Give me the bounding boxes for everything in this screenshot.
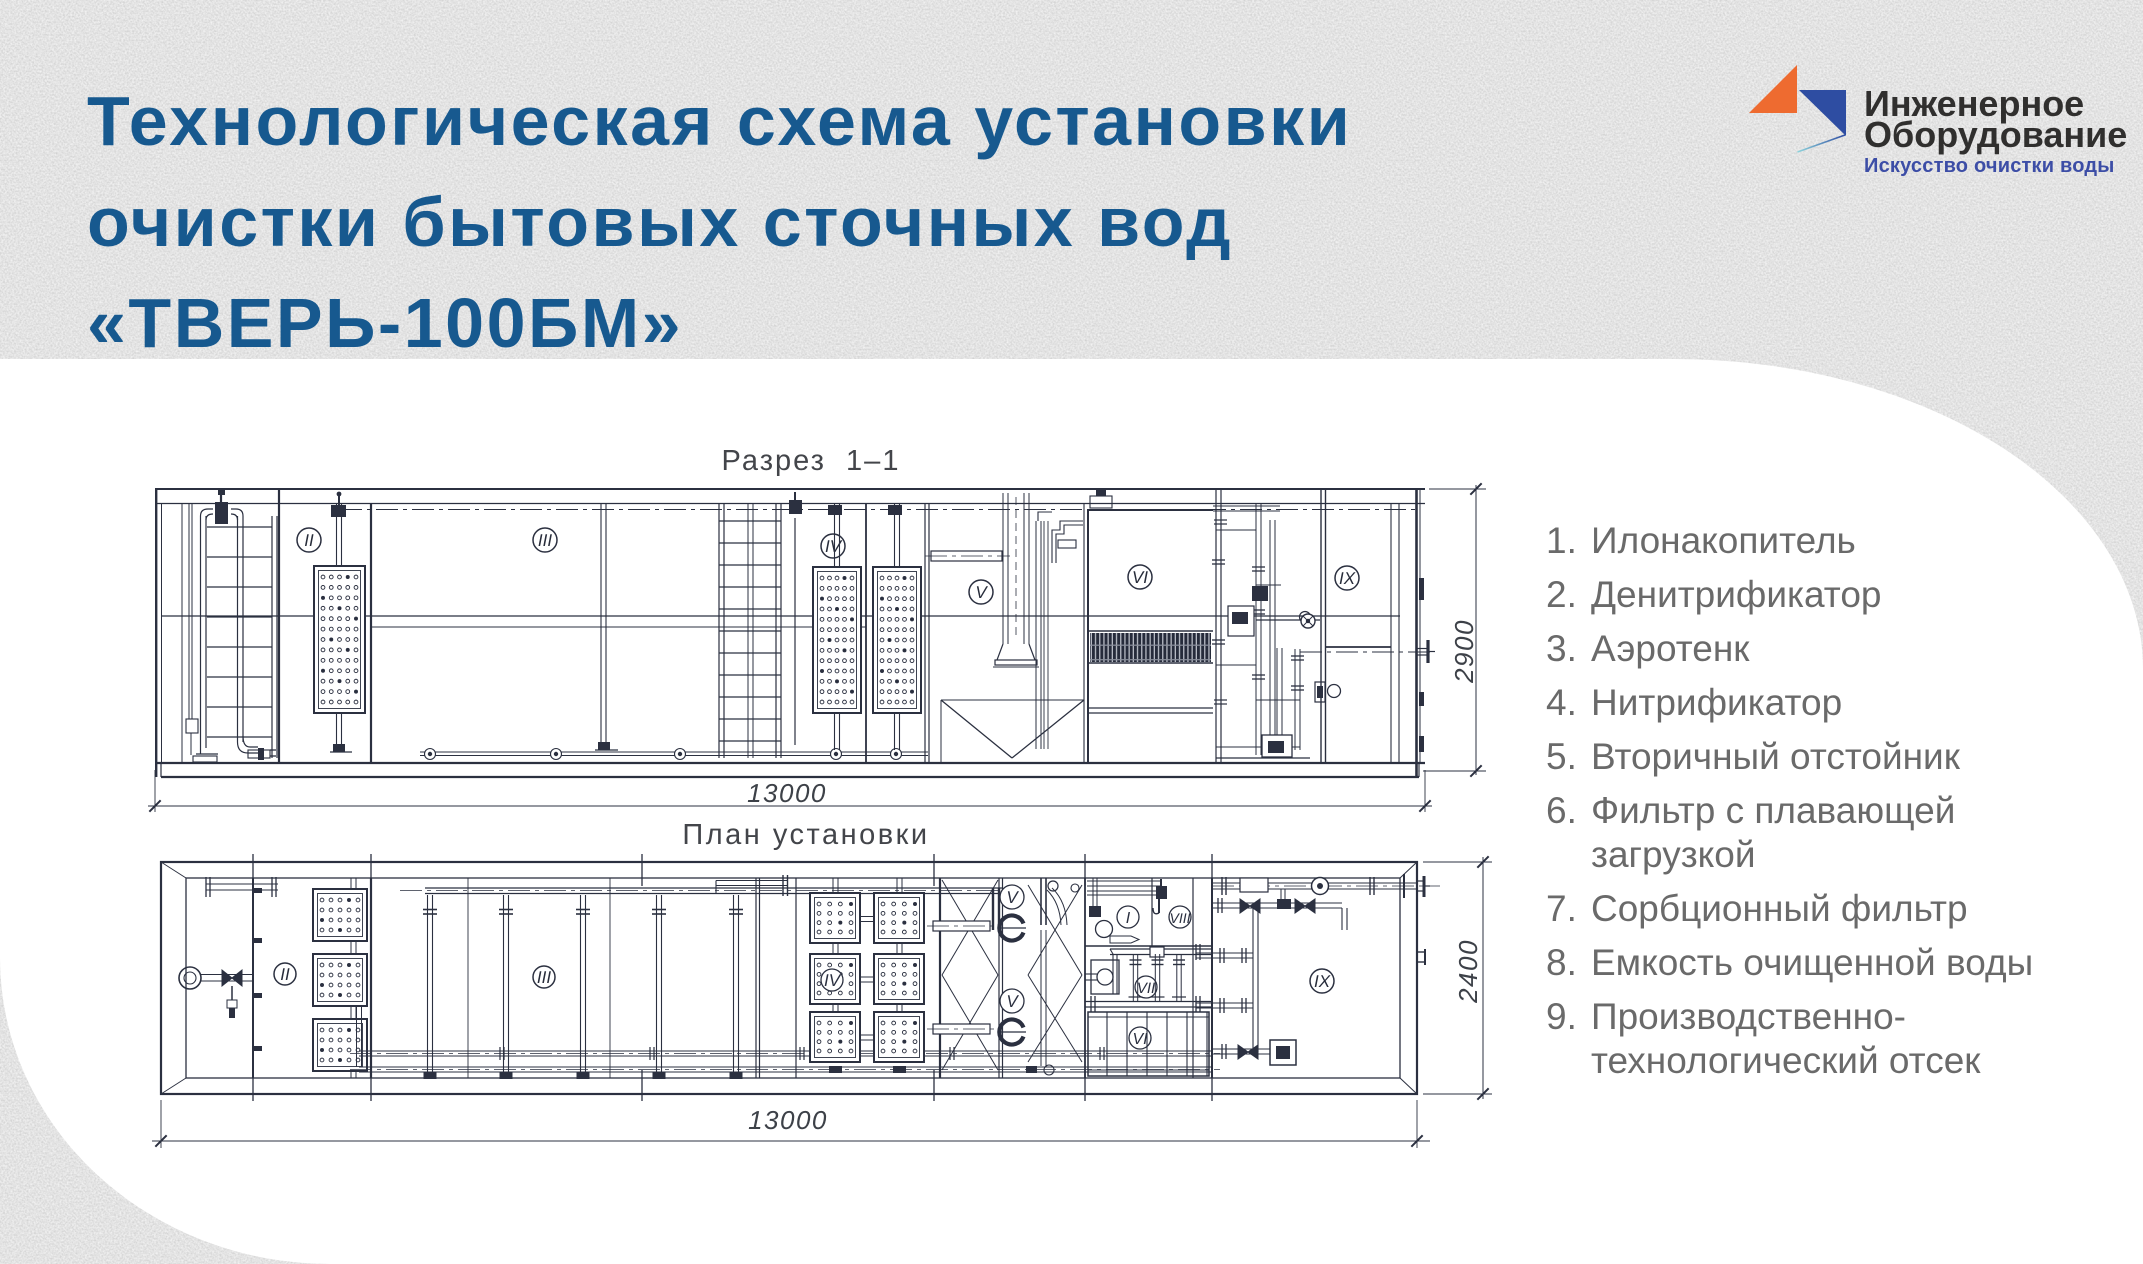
svg-text:План установки: План установки <box>682 819 929 851</box>
svg-text:V: V <box>1006 992 1019 1011</box>
svg-text:Разрез 1–1: Разрез 1–1 <box>722 445 901 477</box>
svg-text:2900: 2900 <box>1449 619 1479 684</box>
svg-text:VII: VII <box>1137 980 1155 997</box>
svg-text:2400: 2400 <box>1453 939 1483 1004</box>
svg-text:I: I <box>1126 910 1131 927</box>
svg-text:13000: 13000 <box>747 778 827 808</box>
svg-text:V: V <box>1006 888 1019 907</box>
svg-text:V: V <box>975 583 988 602</box>
svg-text:VI: VI <box>1132 1031 1148 1048</box>
svg-text:IX: IX <box>1314 972 1331 991</box>
svg-text:III: III <box>538 531 552 550</box>
svg-text:III: III <box>537 968 551 987</box>
svg-text:IV: IV <box>824 971 842 990</box>
svg-text:II: II <box>280 965 290 984</box>
svg-text:13000: 13000 <box>748 1105 828 1135</box>
svg-text:VIII: VIII <box>1169 910 1190 926</box>
svg-text:II: II <box>304 531 314 550</box>
svg-text:VI: VI <box>1132 568 1148 587</box>
svg-text:IX: IX <box>1339 569 1356 588</box>
